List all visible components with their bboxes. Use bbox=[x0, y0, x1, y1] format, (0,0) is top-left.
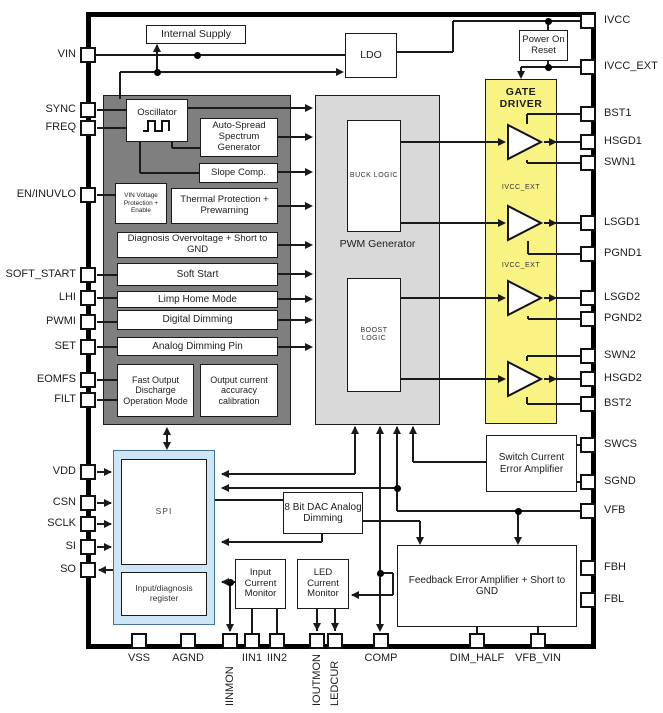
pin-label-pgnd2: PGND2 bbox=[604, 312, 663, 324]
wire-segment bbox=[120, 71, 338, 73]
pin-bst1 bbox=[580, 106, 596, 122]
block-ldo: LDO bbox=[345, 33, 397, 78]
arrowhead bbox=[416, 537, 424, 545]
arrowhead bbox=[305, 133, 313, 141]
arrowhead bbox=[104, 543, 112, 551]
wire-segment bbox=[527, 113, 580, 115]
pin-hsgd1 bbox=[580, 134, 596, 150]
pin-filt bbox=[80, 392, 96, 408]
pin-ivcc bbox=[580, 13, 596, 29]
pin-label-ioutmon: IOUTMON bbox=[311, 646, 323, 706]
pin-label-iin2: IIN2 bbox=[237, 652, 317, 664]
block-label: BOOST LOGIC bbox=[348, 327, 400, 343]
pin-label-so: SO bbox=[0, 563, 76, 575]
arrowhead bbox=[104, 520, 112, 528]
pin-comp bbox=[373, 633, 389, 649]
pin-vin bbox=[80, 47, 96, 63]
pin-label-soft-start: SOFT_START bbox=[0, 268, 76, 280]
block-power-on-reset: Power On Reset bbox=[519, 30, 568, 61]
block-auto-spread: Auto-Spread Spectrum Generator bbox=[200, 118, 278, 157]
arrowhead bbox=[305, 295, 313, 303]
pin-lsgd2 bbox=[580, 290, 596, 306]
arrowhead bbox=[549, 375, 557, 383]
wire-segment bbox=[452, 21, 454, 52]
block-soft-start: Soft Start bbox=[117, 263, 278, 286]
block-label: Thermal Protection + Prewarning bbox=[172, 195, 277, 217]
wire-segment bbox=[354, 427, 356, 474]
wire-segment bbox=[222, 487, 397, 489]
wire-segment bbox=[413, 461, 486, 463]
pin-csn bbox=[80, 495, 96, 511]
block-spi: SPI bbox=[121, 459, 207, 565]
ic-block-diagram: Internal Supply LDO Power On Reset Oscil… bbox=[0, 0, 663, 713]
pwm-generator-label: PWM Generator bbox=[315, 238, 440, 250]
pin-hsgd2 bbox=[580, 371, 596, 387]
wire-segment bbox=[397, 51, 453, 53]
pin-en-inuvlo bbox=[80, 187, 96, 203]
junction-dot bbox=[377, 570, 384, 577]
pin-so bbox=[80, 562, 96, 578]
wire-segment bbox=[97, 194, 115, 196]
block-label: LDO bbox=[360, 49, 382, 61]
arrowhead bbox=[549, 219, 557, 227]
arrowhead bbox=[498, 294, 506, 302]
pin-label-freq: FREQ bbox=[0, 121, 76, 133]
arrowhead bbox=[305, 241, 313, 249]
block-label: 8 Bit DAC Analog Dimming bbox=[284, 502, 362, 525]
block-label: SPI bbox=[156, 507, 173, 517]
wire-segment bbox=[397, 510, 580, 512]
block-label: Power On Reset bbox=[520, 35, 567, 57]
block-label: Limp Home Mode bbox=[158, 294, 237, 306]
arrowhead bbox=[549, 294, 557, 302]
wire-segment bbox=[526, 397, 528, 404]
wire-segment bbox=[222, 541, 322, 543]
pin-label-lsgd1: LSGD1 bbox=[604, 216, 663, 228]
arrowhead bbox=[221, 470, 229, 478]
pin-label-sync: SYNC bbox=[0, 103, 76, 115]
block-dac: 8 Bit DAC Analog Dimming bbox=[283, 492, 363, 534]
arrowhead bbox=[305, 104, 313, 112]
block-fast-output: Fast Output Discharge Operation Mode bbox=[117, 364, 194, 417]
block-boost-logic: BOOST LOGIC bbox=[347, 278, 401, 392]
wire-segment bbox=[396, 427, 398, 511]
arrowhead bbox=[376, 624, 384, 632]
wire-segment bbox=[401, 222, 504, 224]
wire-segment bbox=[527, 316, 529, 319]
wire-segment bbox=[215, 499, 283, 501]
block-input-diag-register: Input/diagnosis register bbox=[121, 572, 207, 616]
arrowhead bbox=[305, 343, 313, 351]
pin-vss bbox=[131, 633, 147, 649]
ivcc-ext-label-2: IVCC_EXT bbox=[485, 262, 557, 269]
pin-label-vfb-vin: VFB_VIN bbox=[498, 652, 578, 664]
wire-segment bbox=[401, 297, 504, 299]
pin-label-fbh: FBH bbox=[604, 561, 663, 573]
pin-label-sclk: SCLK bbox=[0, 517, 76, 529]
block-analog-dimming: Analog Dimming Pin bbox=[117, 337, 278, 356]
gate-driver-amp-4 bbox=[506, 360, 544, 398]
block-led-current-monitor: LED Current Monitor bbox=[297, 559, 349, 609]
pin-label-vin: VIN bbox=[0, 48, 76, 60]
pin-label-hsgd1: HSGD1 bbox=[604, 135, 663, 147]
pin-label-hsgd2: HSGD2 bbox=[604, 372, 663, 384]
wire-segment bbox=[222, 473, 355, 475]
block-label: Analog Dimming Pin bbox=[152, 341, 243, 353]
gate-driver-label: GATE DRIVER bbox=[487, 86, 555, 110]
pin-label-en-inuvlo: EN/INUVLO bbox=[0, 188, 76, 200]
junction-dot bbox=[545, 18, 552, 25]
arrowhead bbox=[313, 623, 321, 631]
pin-label-si: SI bbox=[0, 540, 76, 552]
pin-fbh bbox=[580, 560, 596, 576]
junction-dot bbox=[227, 579, 234, 586]
wire-segment bbox=[139, 142, 141, 173]
pin-label-comp: COMP bbox=[341, 652, 421, 664]
pin-sgnd bbox=[580, 474, 596, 490]
block-label: VIN Voltage Protection + Enable bbox=[117, 192, 165, 214]
pin-vfb-vin bbox=[530, 633, 546, 649]
wire-segment bbox=[97, 321, 117, 323]
arrowhead bbox=[221, 538, 229, 546]
arrowhead bbox=[517, 71, 525, 79]
pin-label-swn2: SWN2 bbox=[604, 349, 663, 361]
block-limp-home: Limp Home Mode bbox=[117, 291, 278, 308]
pin-swcs bbox=[580, 437, 596, 453]
block-feedback-amp: Feedback Error Amplifier + Short to GND bbox=[397, 545, 577, 627]
wire-segment bbox=[140, 172, 199, 174]
wire-segment bbox=[251, 609, 253, 633]
pin-label-swcs: SWCS bbox=[604, 438, 663, 450]
junction-dot bbox=[515, 508, 522, 515]
arrowhead bbox=[336, 68, 344, 76]
wire-segment bbox=[453, 20, 580, 22]
wire-segment bbox=[97, 127, 126, 129]
pin-label-pgnd1: PGND1 bbox=[604, 247, 663, 259]
wire-segment bbox=[526, 356, 528, 361]
arrowhead bbox=[305, 202, 313, 210]
arrowhead bbox=[376, 426, 384, 434]
wire-segment bbox=[119, 72, 121, 99]
wire-segment bbox=[392, 573, 394, 595]
wire-segment bbox=[528, 318, 580, 320]
wire-segment bbox=[97, 109, 126, 111]
pin-label-vfb: VFB bbox=[604, 504, 663, 516]
wire-segment bbox=[321, 534, 323, 542]
pin-label-set: SET bbox=[0, 340, 76, 352]
pin-sclk bbox=[80, 516, 96, 532]
wire-segment bbox=[188, 107, 310, 109]
pin-pgnd2 bbox=[580, 311, 596, 327]
wire-segment bbox=[276, 609, 278, 633]
block-label: Feedback Error Amplifier + Short to GND bbox=[398, 575, 576, 598]
wire-segment bbox=[526, 160, 528, 163]
block-oscillator: Oscillator bbox=[126, 99, 188, 142]
block-output-current: Output current accuracy calibration bbox=[200, 364, 278, 417]
junction-dot bbox=[194, 52, 201, 59]
block-label: Oscillator bbox=[137, 108, 177, 119]
pin-pwmi bbox=[80, 314, 96, 330]
wire-segment bbox=[363, 520, 420, 522]
arrowhead bbox=[549, 138, 557, 146]
arrowhead bbox=[153, 44, 161, 52]
gate-driver-amp-3 bbox=[506, 279, 544, 317]
pin-sync bbox=[80, 102, 96, 118]
wire-segment bbox=[97, 297, 117, 299]
wire-segment bbox=[401, 141, 504, 143]
block-label: Switch Current Error Amplifier bbox=[487, 452, 576, 475]
arrowhead bbox=[226, 624, 234, 632]
arrowhead bbox=[393, 426, 401, 434]
block-label: Internal Supply bbox=[161, 28, 231, 40]
block-input-current-monitor: Input Current Monitor bbox=[235, 559, 286, 609]
pin-si bbox=[80, 539, 96, 555]
pin-label-bst1: BST1 bbox=[604, 107, 663, 119]
pin-label-ivcc: IVCC bbox=[604, 14, 663, 26]
block-label: Diagnosis Overvoltage + Short to GND bbox=[118, 234, 277, 256]
pin-label-fbl: FBL bbox=[604, 593, 663, 605]
block-diagnosis: Diagnosis Overvoltage + Short to GND bbox=[117, 232, 278, 258]
gate-driver-amp-2 bbox=[506, 204, 544, 242]
junction-dot bbox=[154, 69, 161, 76]
arrowhead bbox=[331, 623, 339, 631]
pin-label-csn: CSN bbox=[0, 496, 76, 508]
block-label: Auto-Spread Spectrum Generator bbox=[201, 121, 277, 154]
pin-label-bst2: BST2 bbox=[604, 397, 663, 409]
block-label: Output current accuracy calibration bbox=[201, 375, 277, 406]
junction-dot bbox=[545, 64, 552, 71]
pin-lhi bbox=[80, 290, 96, 306]
pin-swn2 bbox=[580, 348, 596, 364]
arrowhead bbox=[498, 219, 506, 227]
pin-lsgd1 bbox=[580, 215, 596, 231]
block-switch-current-amp: Switch Current Error Amplifier bbox=[486, 435, 577, 492]
pin-swn1 bbox=[580, 155, 596, 171]
wire-segment bbox=[97, 346, 117, 348]
wire-segment bbox=[171, 142, 173, 148]
pin-pgnd1 bbox=[580, 246, 596, 262]
block-thermal-protection: Thermal Protection + Prewarning bbox=[171, 188, 278, 224]
block-vin-protection: VIN Voltage Protection + Enable bbox=[115, 183, 167, 224]
block-label: Digital Dimming bbox=[162, 314, 232, 326]
wire-segment bbox=[401, 378, 504, 380]
wire-segment bbox=[528, 253, 580, 255]
arrowhead bbox=[163, 427, 171, 435]
pin-label-vdd: VDD bbox=[0, 465, 76, 477]
wire-segment bbox=[526, 114, 528, 124]
block-label: Input/diagnosis register bbox=[122, 584, 206, 604]
arrowhead bbox=[163, 442, 171, 450]
arrowhead bbox=[351, 591, 359, 599]
pin-label-eomfs: EOMFS bbox=[0, 373, 76, 385]
arrowhead bbox=[221, 484, 229, 492]
arrowhead bbox=[104, 468, 112, 476]
block-label: Slope Comp. bbox=[211, 168, 266, 179]
arrowhead bbox=[305, 270, 313, 278]
pin-freq bbox=[80, 120, 96, 136]
block-internal-supply: Internal Supply bbox=[146, 25, 246, 44]
wire-segment bbox=[96, 54, 345, 56]
pin-label-lsgd2: LSGD2 bbox=[604, 291, 663, 303]
pin-eomfs bbox=[80, 372, 96, 388]
block-label: Soft Start bbox=[177, 269, 219, 281]
arrowhead bbox=[305, 168, 313, 176]
pin-vdd bbox=[80, 464, 96, 480]
arrowhead bbox=[409, 426, 417, 434]
square-wave-icon bbox=[140, 118, 174, 133]
arrowhead bbox=[351, 426, 359, 434]
pin-soft-start bbox=[80, 267, 96, 283]
wire-segment bbox=[527, 355, 580, 357]
wire-segment bbox=[527, 403, 580, 405]
pin-label-filt: FILT bbox=[0, 393, 76, 405]
block-label: Fast Output Discharge Operation Mode bbox=[118, 375, 193, 406]
pin-label-ivcc-ext: IVCC_EXT bbox=[604, 60, 663, 72]
pin-ivcc-ext bbox=[580, 59, 596, 75]
pin-dim-half bbox=[469, 633, 485, 649]
pin-fbl bbox=[580, 592, 596, 608]
pin-label-ledcur: LEDCUR bbox=[329, 646, 341, 706]
block-buck-logic: BUCK LOGIC bbox=[347, 120, 401, 232]
block-label: LED Current Monitor bbox=[298, 568, 348, 601]
block-digital-dimming: Digital Dimming bbox=[117, 310, 278, 330]
wire-segment bbox=[97, 379, 117, 381]
pin-label-pwmi: PWMI bbox=[0, 315, 76, 327]
ivcc-ext-label-1: IVCC_EXT bbox=[485, 184, 557, 191]
wire-segment bbox=[172, 147, 200, 149]
pin-vfb bbox=[580, 503, 596, 519]
pin-iin1 bbox=[244, 633, 260, 649]
wire-segment bbox=[97, 399, 117, 401]
pin-label-swn1: SWN1 bbox=[604, 156, 663, 168]
block-label: BUCK LOGIC bbox=[350, 172, 398, 180]
pin-agnd bbox=[180, 633, 196, 649]
junction-dot bbox=[394, 485, 401, 492]
block-label: Input Current Monitor bbox=[236, 568, 285, 601]
arrowhead bbox=[498, 138, 506, 146]
gate-driver-amp-1 bbox=[506, 123, 544, 161]
pin-label-lhi: LHI bbox=[0, 291, 76, 303]
arrowhead bbox=[104, 499, 112, 507]
wire-segment bbox=[527, 162, 580, 164]
pin-label-sgnd: SGND bbox=[604, 475, 663, 487]
block-slope-comp: Slope Comp. bbox=[199, 163, 278, 183]
arrowhead bbox=[498, 375, 506, 383]
wire-segment bbox=[97, 274, 117, 276]
wire-segment bbox=[379, 427, 381, 629]
arrowhead bbox=[98, 566, 106, 574]
arrowhead bbox=[514, 537, 522, 545]
arrowhead bbox=[305, 316, 313, 324]
pin-iin2 bbox=[269, 633, 285, 649]
pin-bst2 bbox=[580, 396, 596, 412]
wire-segment bbox=[527, 241, 529, 254]
pin-set bbox=[80, 339, 96, 355]
